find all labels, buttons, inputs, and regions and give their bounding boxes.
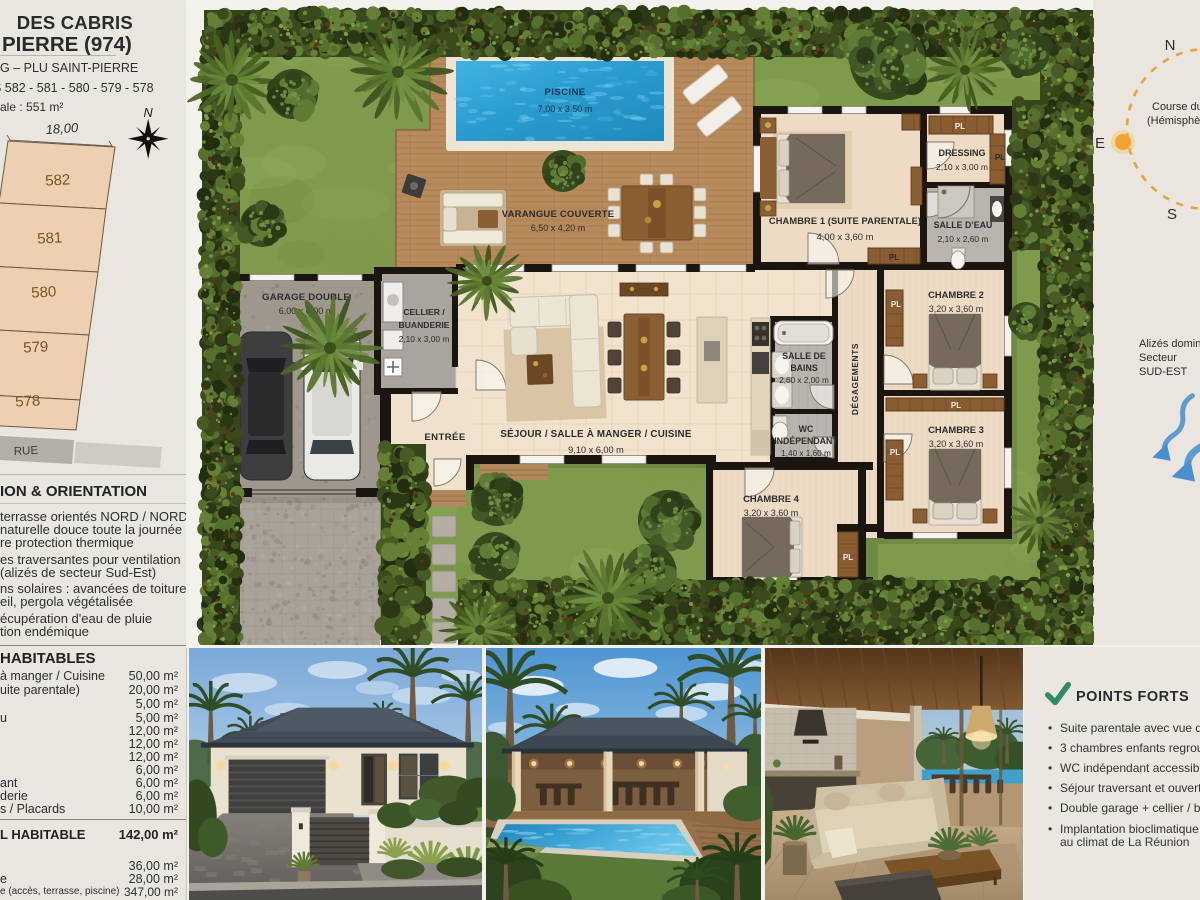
svg-text:6,50 x 4,20 m: 6,50 x 4,20 m [531,223,586,233]
svg-text:CHAMBRE 3: CHAMBRE 3 [928,424,984,435]
svg-text:579: 579 [23,338,49,356]
svg-text:PL: PL [843,553,853,562]
svg-text:18,00: 18,00 [45,120,79,137]
svg-text:BUANDERIE: BUANDERIE [398,320,449,330]
svg-text:9,10 x 6,00 m: 9,10 x 6,00 m [568,445,624,455]
svg-text:DRESSING: DRESSING [938,148,985,158]
svg-text:SALLE DE: SALLE DE [782,351,826,361]
svg-text:581: 581 [37,229,63,247]
svg-text:1,40 x 1,60 m: 1,40 x 1,60 m [781,449,831,458]
svg-text:3,20 x 3,60 m: 3,20 x 3,60 m [929,304,984,314]
svg-text:2,60 x 2,00 m: 2,60 x 2,00 m [779,376,829,385]
svg-text:VARANGUE COUVERTE: VARANGUE COUVERTE [502,209,614,220]
svg-text:578: 578 [15,392,41,410]
svg-text:PISCINE: PISCINE [544,87,585,98]
svg-text:WC: WC [799,424,814,434]
svg-text:2,10 x 3,00 m: 2,10 x 3,00 m [399,334,450,344]
svg-text:PL: PL [955,122,965,131]
svg-text:DÉGAGEMENTS: DÉGAGEMENTS [849,343,860,415]
svg-text:4,00 x 3,60 m: 4,00 x 3,60 m [817,231,874,242]
svg-text:CELLIER /: CELLIER / [403,307,445,317]
svg-text:2,10 x 3,00 m: 2,10 x 3,00 m [936,162,988,172]
svg-text:CHAMBRE 1 (SUITE PARENTALE): CHAMBRE 1 (SUITE PARENTALE) [769,216,921,226]
svg-text:PL: PL [995,153,1005,162]
svg-text:PL: PL [951,401,961,410]
svg-text:CHAMBRE 4: CHAMBRE 4 [743,493,800,504]
svg-text:ENTRÉE: ENTRÉE [424,431,466,443]
svg-text:2,10 x 2,60 m: 2,10 x 2,60 m [938,234,989,244]
svg-text:BAINS: BAINS [790,363,818,373]
svg-text:3,20 x 3,60 m: 3,20 x 3,60 m [744,508,799,518]
svg-text:INDÉPENDANT: INDÉPENDANT [774,436,838,446]
svg-text:580: 580 [31,283,57,301]
svg-text:SALLE D’EAU: SALLE D’EAU [934,220,993,230]
svg-text:582: 582 [45,171,71,189]
svg-text:N: N [144,105,154,120]
svg-text:7,00 x 3,50 m: 7,00 x 3,50 m [538,104,593,114]
svg-text:PL: PL [890,448,900,457]
svg-text:RUE: RUE [14,445,39,458]
svg-text:3,20 x 3,60 m: 3,20 x 3,60 m [929,439,984,449]
svg-text:CHAMBRE 2: CHAMBRE 2 [928,289,984,300]
svg-text:SÉJOUR / SALLE À MANGER / CUIS: SÉJOUR / SALLE À MANGER / CUISINE [500,428,691,440]
svg-text:PL: PL [891,300,901,309]
svg-text:PL: PL [889,253,899,262]
